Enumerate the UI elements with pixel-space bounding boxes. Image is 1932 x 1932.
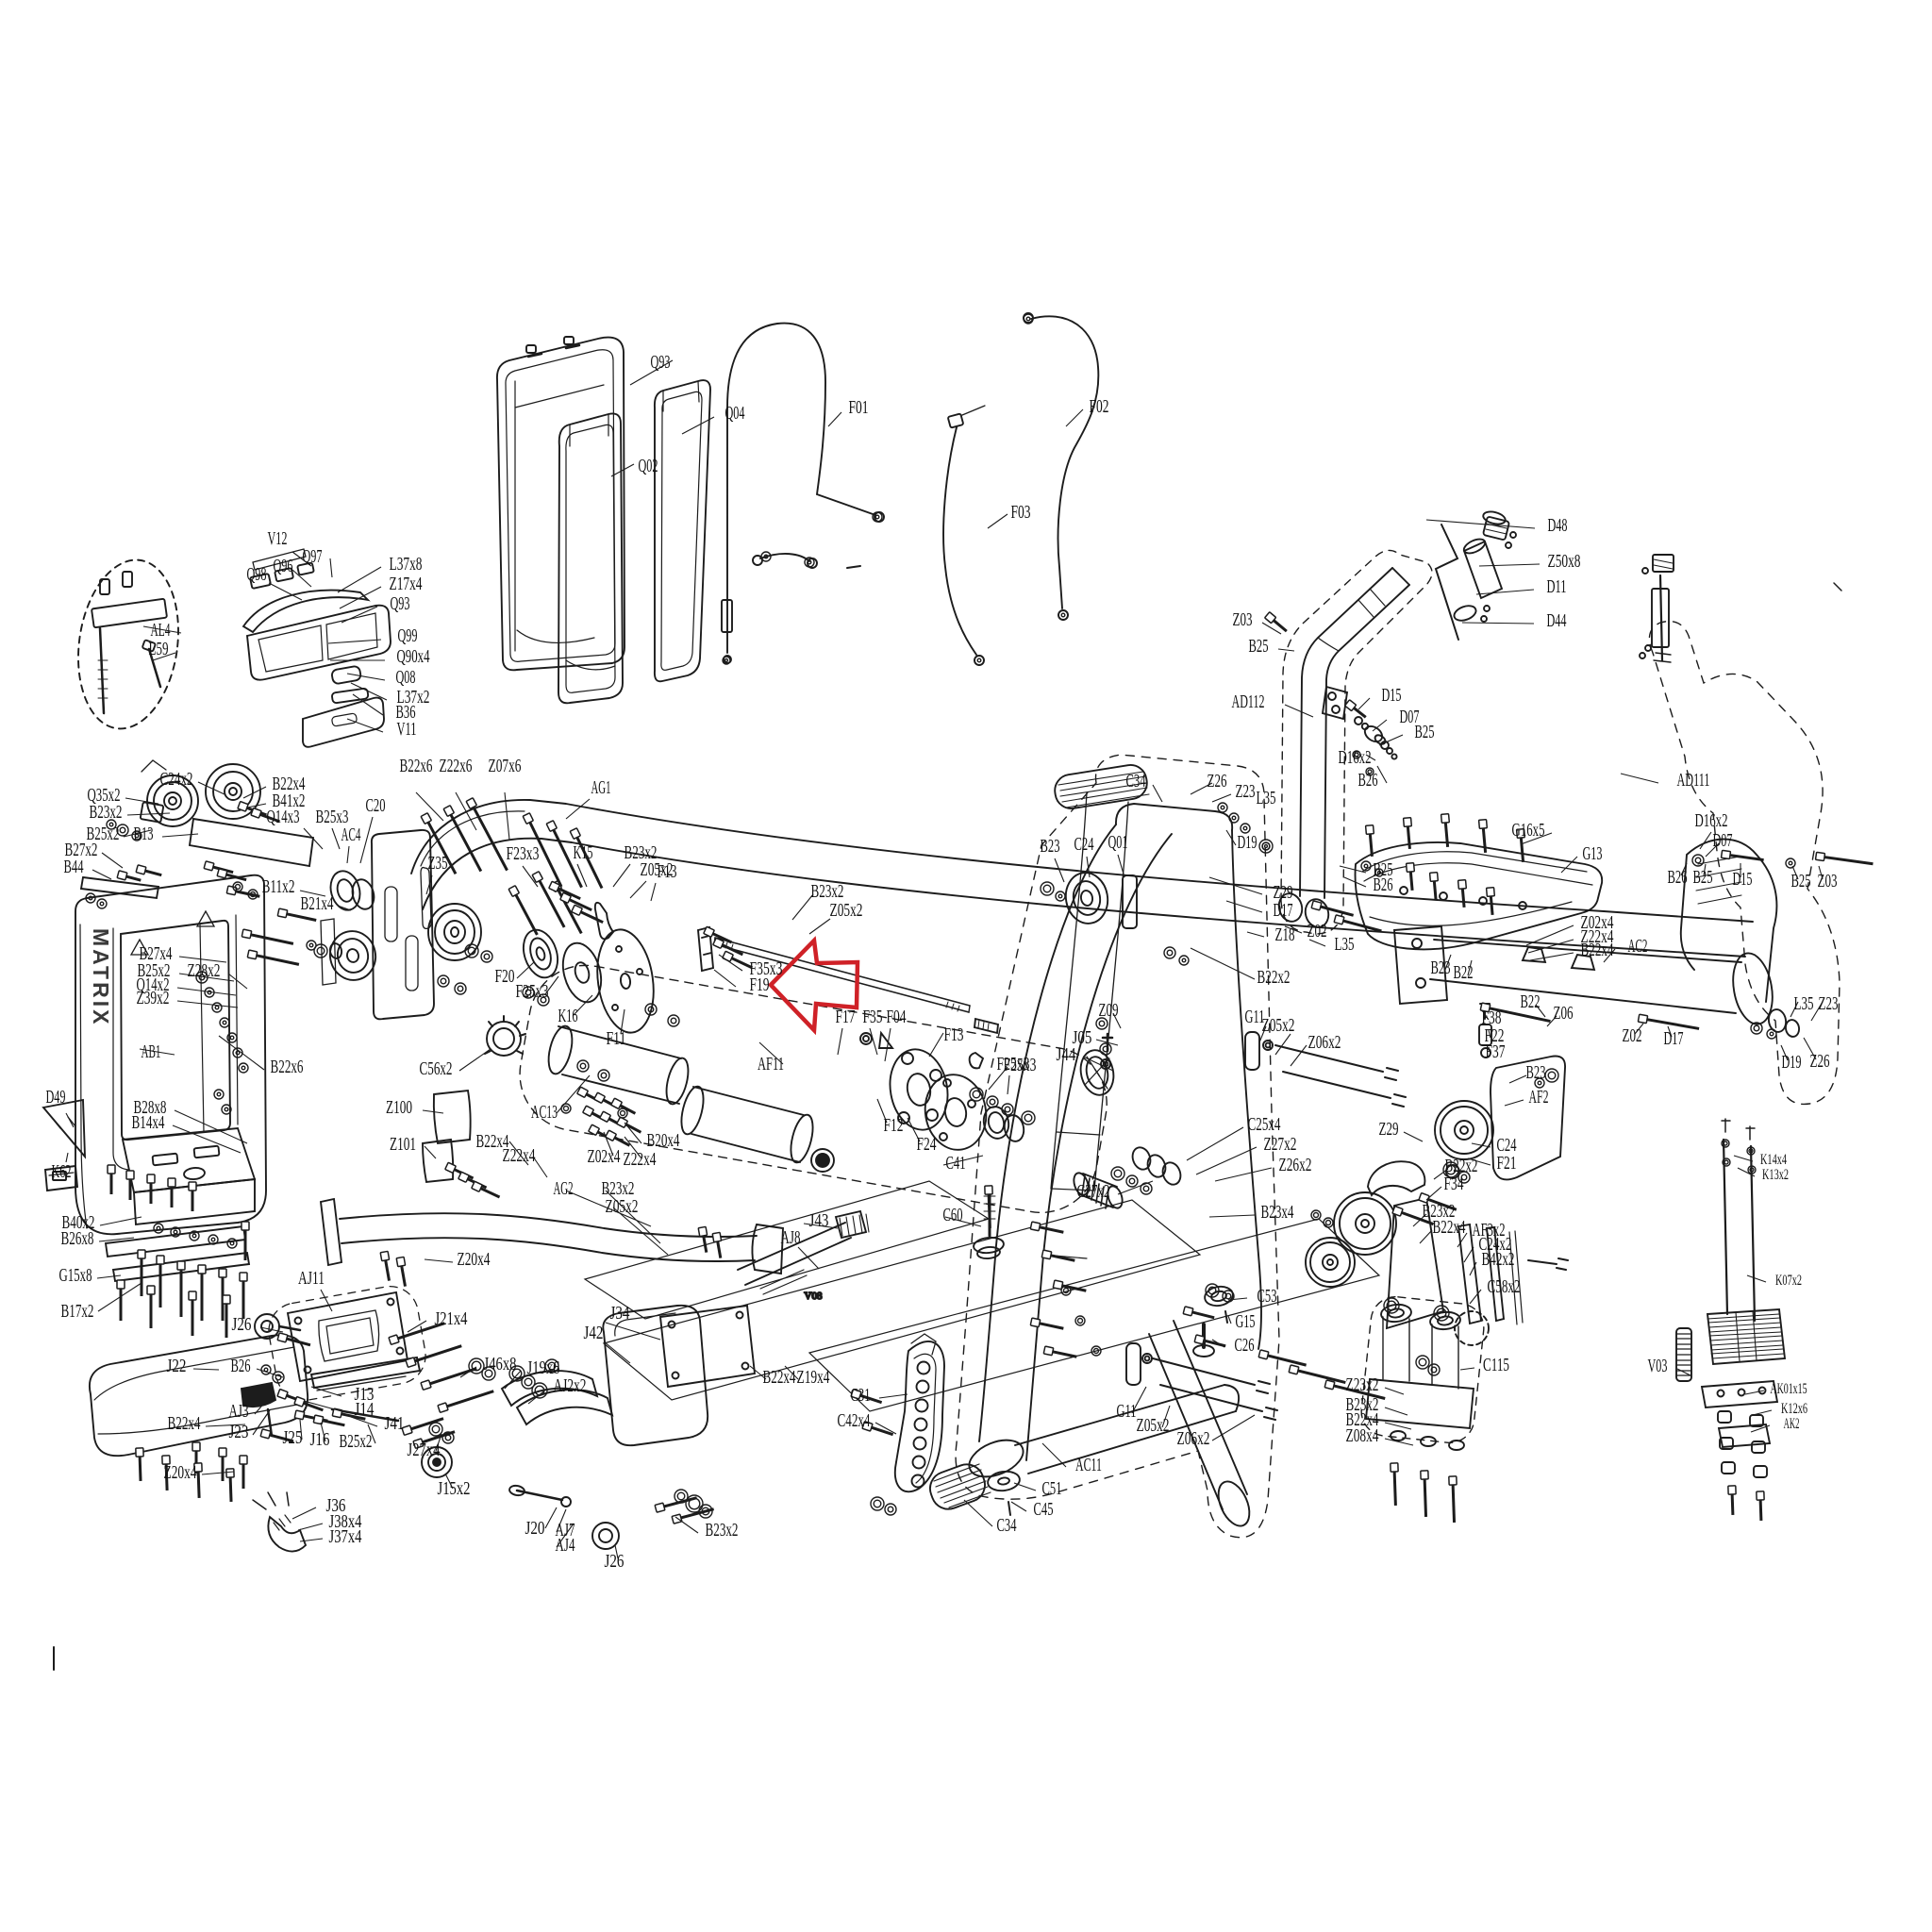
- svg-text:L35: L35: [1794, 993, 1814, 1014]
- svg-text:L35: L35: [1335, 934, 1355, 955]
- svg-text:Z27x2: Z27x2: [1264, 1134, 1297, 1155]
- svg-text:B23: B23: [1431, 958, 1451, 978]
- svg-text:F13: F13: [658, 861, 677, 882]
- svg-text:F04: F04: [887, 1007, 907, 1027]
- svg-text:J15x2: J15x2: [438, 1478, 471, 1499]
- svg-text:D17: D17: [1274, 900, 1293, 921]
- svg-text:Z23: Z23: [1819, 993, 1839, 1014]
- svg-text:D11: D11: [1547, 576, 1567, 597]
- svg-text:V08: V08: [805, 1291, 823, 1302]
- svg-text:F12: F12: [884, 1115, 904, 1136]
- svg-text:Z06x2: Z06x2: [1308, 1032, 1341, 1053]
- svg-text:Z17x4: Z17x4: [390, 574, 423, 594]
- svg-text:Z19x4: Z19x4: [797, 1367, 830, 1388]
- svg-text:B22x6: B22x6: [271, 1057, 304, 1077]
- svg-text:B23: B23: [1041, 836, 1060, 857]
- svg-text:AL4: AL4: [151, 620, 171, 641]
- svg-text:Z18: Z18: [1275, 924, 1295, 945]
- svg-text:C27x2: C27x2: [1077, 1181, 1110, 1202]
- svg-text:D17: D17: [1664, 1028, 1684, 1049]
- svg-text:B23x4: B23x4: [1261, 1202, 1294, 1223]
- svg-text:Z101: Z101: [390, 1134, 416, 1155]
- svg-text:AK2: AK2: [1784, 1416, 1800, 1432]
- svg-text:B22x4: B22x4: [168, 1413, 201, 1434]
- svg-text:D15: D15: [1733, 869, 1753, 890]
- svg-text:Z02: Z02: [1307, 921, 1327, 941]
- svg-text:Z26x2: Z26x2: [1279, 1155, 1312, 1175]
- svg-text:Q01: Q01: [1108, 832, 1128, 853]
- svg-text:J20: J20: [525, 1518, 545, 1539]
- svg-text:Z05x2: Z05x2: [1262, 1015, 1295, 1036]
- svg-text:D19: D19: [1782, 1052, 1802, 1073]
- svg-text:B22x6: B22x6: [400, 756, 433, 776]
- svg-text:K12x6: K12x6: [1781, 1401, 1807, 1417]
- svg-text:C34: C34: [997, 1515, 1017, 1536]
- svg-text:Q04: Q04: [725, 403, 745, 424]
- svg-text:K14x4: K14x4: [1760, 1152, 1787, 1168]
- svg-text:J23: J23: [229, 1422, 249, 1442]
- svg-text:J43: J43: [809, 1210, 829, 1231]
- svg-text:Q14x3: Q14x3: [267, 807, 300, 827]
- svg-text:B20x4: B20x4: [647, 1130, 680, 1151]
- svg-text:Q98: Q98: [247, 564, 267, 585]
- svg-text:C24: C24: [1074, 834, 1094, 855]
- svg-text:AJ2x2: AJ2x2: [554, 1375, 587, 1396]
- svg-text:Z35: Z35: [428, 853, 448, 874]
- svg-text:B22: B22: [1521, 991, 1541, 1012]
- svg-text:AC4: AC4: [341, 824, 361, 845]
- svg-text:Z05x2: Z05x2: [830, 900, 863, 921]
- svg-text:B22x2: B22x2: [1257, 967, 1291, 988]
- svg-text:B44: B44: [64, 857, 84, 877]
- svg-text:B17x2: B17x2: [61, 1301, 94, 1322]
- svg-text:B14x4: B14x4: [132, 1112, 165, 1133]
- svg-text:B26: B26: [1668, 867, 1688, 888]
- svg-text:K62: K62: [52, 1161, 72, 1182]
- svg-text:Z06x2: Z06x2: [1177, 1428, 1210, 1449]
- svg-text:F35: F35: [863, 1007, 883, 1027]
- svg-text:C60: C60: [943, 1205, 963, 1225]
- svg-text:AD111: AD111: [1677, 770, 1710, 791]
- svg-text:AC2: AC2: [1628, 936, 1648, 957]
- svg-text:F03: F03: [1011, 502, 1031, 523]
- svg-text:J16: J16: [310, 1429, 330, 1450]
- svg-text:B25x2: B25x2: [340, 1431, 373, 1452]
- svg-text:Z20x4: Z20x4: [164, 1462, 197, 1483]
- svg-text:Z05x2: Z05x2: [606, 1196, 639, 1217]
- svg-text:J14: J14: [355, 1399, 375, 1420]
- svg-text:D07: D07: [1713, 830, 1733, 851]
- svg-text:C56x2: C56x2: [420, 1058, 453, 1079]
- svg-text:J41: J41: [385, 1413, 405, 1434]
- svg-text:B22x4: B22x4: [763, 1367, 796, 1388]
- svg-text:Z22x4: Z22x4: [624, 1149, 657, 1170]
- svg-text:F25x3: F25x3: [516, 981, 549, 1002]
- svg-text:D16x2: D16x2: [1339, 747, 1372, 768]
- svg-text:Z39x2: Z39x2: [137, 988, 170, 1008]
- svg-text:Z23: Z23: [1236, 781, 1256, 802]
- svg-text:C31: C31: [851, 1385, 871, 1406]
- svg-text:Z20x4: Z20x4: [458, 1249, 491, 1270]
- svg-text:F11: F11: [607, 1028, 626, 1049]
- svg-text:F37: F37: [1486, 1041, 1506, 1062]
- svg-text:F24: F24: [917, 1134, 937, 1155]
- svg-text:B25: B25: [1791, 871, 1811, 891]
- svg-text:V11: V11: [397, 719, 417, 740]
- svg-text:Z28x2: Z28x2: [188, 960, 221, 981]
- svg-text:G15x8: G15x8: [59, 1265, 92, 1286]
- svg-text:Q02: Q02: [639, 456, 658, 476]
- svg-text:B13: B13: [134, 824, 154, 844]
- svg-text:F02: F02: [1090, 396, 1109, 417]
- svg-text:Z26: Z26: [1207, 771, 1227, 791]
- svg-text:Z02x4: Z02x4: [588, 1146, 621, 1167]
- svg-text:Z29: Z29: [1379, 1119, 1399, 1140]
- svg-text:AJ4: AJ4: [556, 1535, 575, 1556]
- svg-text:C58x2: C58x2: [1488, 1276, 1521, 1297]
- svg-text:Z26: Z26: [1810, 1051, 1830, 1072]
- svg-text:Q99: Q99: [398, 625, 418, 646]
- svg-text:Z09: Z09: [1099, 1000, 1119, 1021]
- svg-text:Z22x4: Z22x4: [503, 1145, 536, 1166]
- svg-text:AK01x15: AK01x15: [1770, 1381, 1807, 1397]
- svg-text:D49: D49: [46, 1087, 66, 1108]
- svg-text:D16x2: D16x2: [1695, 810, 1728, 831]
- svg-text:G13: G13: [1583, 843, 1603, 864]
- svg-text:Q08: Q08: [396, 667, 416, 688]
- svg-text:B26x8: B26x8: [61, 1228, 94, 1249]
- svg-text:Q93: Q93: [391, 593, 410, 614]
- svg-text:F23x3: F23x3: [507, 843, 540, 864]
- svg-text:B25: B25: [1415, 722, 1435, 742]
- svg-text:L35: L35: [1257, 788, 1276, 808]
- svg-text:C53: C53: [1257, 1286, 1277, 1307]
- svg-text:AC13: AC13: [531, 1102, 558, 1123]
- svg-text:C41: C41: [946, 1153, 966, 1174]
- svg-text:K07x2: K07x2: [1775, 1273, 1802, 1289]
- svg-text:J26: J26: [232, 1314, 252, 1335]
- svg-text:AG2: AG2: [554, 1178, 574, 1199]
- svg-text:B42x2: B42x2: [1482, 1249, 1515, 1270]
- svg-text:Z50x8: Z50x8: [1548, 551, 1581, 572]
- svg-text:G11: G11: [1117, 1401, 1137, 1422]
- svg-text:F19: F19: [750, 974, 770, 995]
- svg-text:Z03: Z03: [1233, 609, 1253, 630]
- svg-text:B23x2: B23x2: [90, 802, 123, 823]
- svg-text:F13: F13: [944, 1024, 964, 1045]
- svg-text:Z02: Z02: [1623, 1025, 1642, 1046]
- svg-text:Z100: Z100: [386, 1097, 412, 1118]
- svg-text:F34: F34: [1444, 1174, 1464, 1194]
- svg-text:B22x4: B22x4: [1581, 940, 1614, 960]
- svg-text:B22: B22: [1454, 962, 1474, 983]
- svg-text:B21x4: B21x4: [301, 893, 334, 914]
- svg-text:C25x4: C25x4: [1248, 1114, 1281, 1135]
- svg-text:Q93: Q93: [651, 352, 671, 373]
- svg-text:AF2: AF2: [1529, 1087, 1549, 1108]
- svg-text:F17: F17: [836, 1007, 856, 1027]
- svg-text:B22x4: B22x4: [1433, 1217, 1466, 1238]
- svg-text:Q90x4: Q90x4: [397, 646, 430, 667]
- svg-text:J46x8: J46x8: [484, 1354, 517, 1374]
- svg-text:C26: C26: [1235, 1335, 1255, 1356]
- svg-text:J42: J42: [584, 1323, 604, 1343]
- svg-text:AF11: AF11: [758, 1054, 784, 1074]
- svg-text:B26: B26: [231, 1356, 251, 1376]
- svg-text:J21x4: J21x4: [435, 1308, 468, 1329]
- svg-text:AB1: AB1: [142, 1041, 161, 1062]
- svg-text:B25: B25: [1693, 867, 1713, 888]
- svg-text:J25: J25: [283, 1427, 303, 1448]
- svg-text:D19: D19: [1238, 832, 1257, 853]
- svg-text:C51: C51: [1042, 1478, 1062, 1499]
- svg-text:Z06: Z06: [1554, 1003, 1574, 1024]
- svg-text:C42x4: C42x4: [838, 1410, 871, 1431]
- svg-text:C45: C45: [1034, 1499, 1054, 1520]
- svg-text:B11x2: B11x2: [262, 876, 295, 897]
- svg-text:K16: K16: [558, 1006, 578, 1026]
- svg-text:J26: J26: [605, 1551, 625, 1572]
- svg-text:AJ3: AJ3: [229, 1401, 249, 1422]
- svg-text:V03: V03: [1648, 1356, 1668, 1376]
- svg-text:C20: C20: [366, 795, 386, 816]
- svg-text:C115: C115: [1483, 1355, 1509, 1375]
- svg-text:J37x4: J37x4: [329, 1526, 362, 1547]
- svg-text:L37x8: L37x8: [390, 554, 423, 575]
- svg-text:B23x2: B23x2: [706, 1520, 739, 1541]
- svg-text:Q97: Q97: [303, 546, 323, 567]
- svg-text:J34: J34: [610, 1303, 630, 1324]
- svg-text:D48: D48: [1548, 515, 1568, 536]
- svg-text:C34: C34: [1126, 771, 1146, 791]
- svg-text:Z22x6: Z22x6: [440, 756, 473, 776]
- svg-text:V12: V12: [268, 528, 288, 549]
- svg-text:J27x4: J27x4: [408, 1440, 441, 1460]
- svg-text:Z05x2: Z05x2: [1137, 1415, 1170, 1436]
- svg-text:K13x2: K13x2: [1762, 1167, 1789, 1183]
- svg-text:G15: G15: [1236, 1311, 1256, 1332]
- svg-text:D44: D44: [1547, 610, 1567, 631]
- svg-text:B23x2: B23x2: [811, 881, 844, 902]
- svg-text:AD112: AD112: [1232, 691, 1265, 712]
- svg-text:B26: B26: [1358, 770, 1378, 791]
- svg-text:F20: F20: [495, 966, 515, 987]
- svg-text:B23: B23: [1526, 1062, 1546, 1083]
- svg-text:F21: F21: [1497, 1153, 1517, 1174]
- svg-text:C24x2: C24x2: [160, 769, 193, 790]
- svg-text:Z07x6: Z07x6: [489, 756, 522, 776]
- svg-text:AJ11: AJ11: [298, 1268, 325, 1289]
- svg-text:J22: J22: [167, 1356, 187, 1376]
- svg-text:J44: J44: [1057, 1044, 1076, 1065]
- svg-text:K15: K15: [574, 842, 593, 863]
- svg-text:F01: F01: [849, 397, 869, 418]
- svg-text:AG1: AG1: [591, 777, 611, 798]
- svg-text:B25: B25: [1249, 636, 1269, 657]
- svg-text:AC11: AC11: [1075, 1455, 1102, 1475]
- svg-text:Q96: Q96: [274, 556, 293, 576]
- svg-text:MATRIX: MATRIX: [89, 928, 113, 1026]
- svg-text:AJ8: AJ8: [781, 1227, 801, 1248]
- svg-text:Z03: Z03: [1818, 871, 1838, 891]
- svg-text:F25x3: F25x3: [997, 1054, 1030, 1074]
- svg-text:L59: L59: [149, 639, 169, 659]
- svg-text:Z08x4: Z08x4: [1346, 1425, 1379, 1446]
- svg-text:B26: B26: [1374, 874, 1393, 895]
- svg-text:D15: D15: [1382, 685, 1402, 706]
- svg-text:Z23x2: Z23x2: [1346, 1374, 1379, 1395]
- svg-text:G16x5: G16x5: [1512, 820, 1545, 841]
